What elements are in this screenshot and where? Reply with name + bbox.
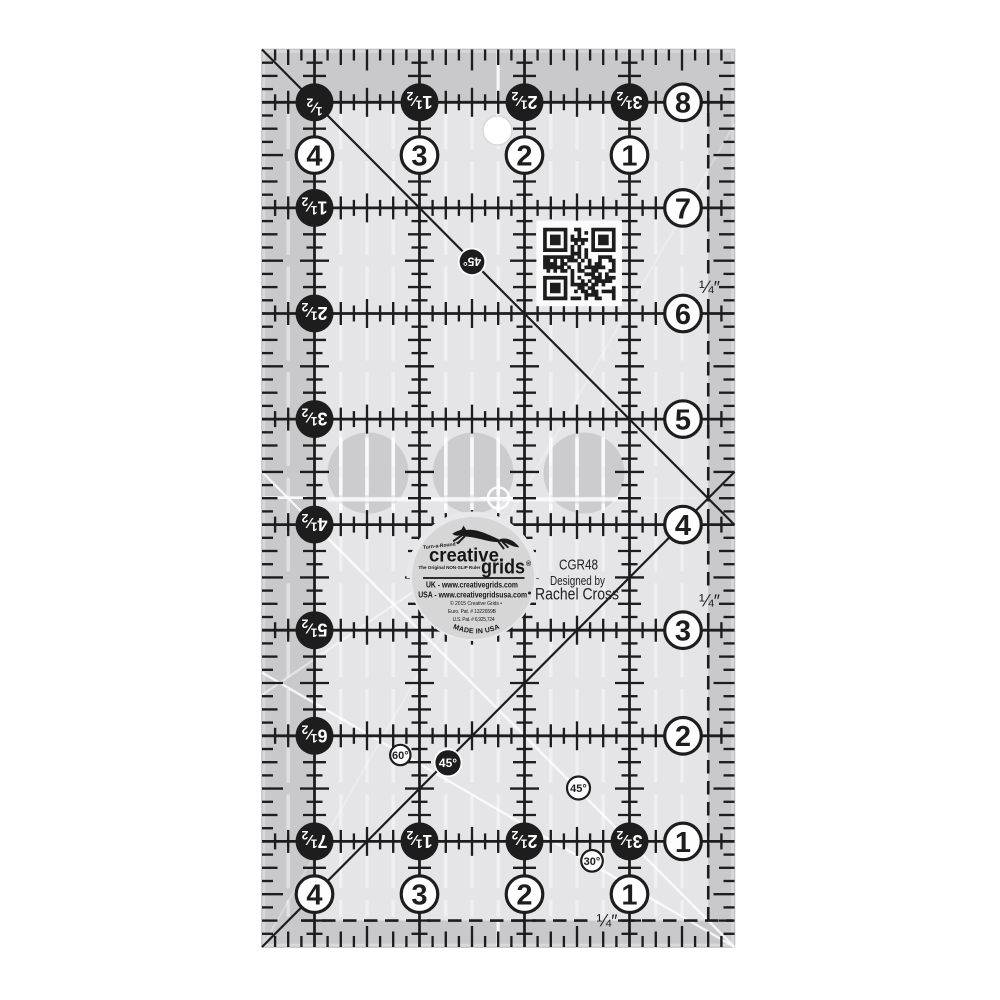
svg-text:4: 4 [675,510,691,542]
svg-text:3: 3 [411,880,427,912]
svg-text:U.S. Pat. # 6,925,724: U.S. Pat. # 6,925,724 [453,617,495,623]
svg-text:USA - www.creativegridsusa.com: USA - www.creativegridsusa.com [418,591,527,600]
svg-text:3: 3 [411,141,427,173]
svg-text:¼″: ¼″ [597,911,618,931]
svg-text:4: 4 [306,141,322,173]
svg-text:¼″: ¼″ [699,591,720,611]
svg-text:grids: grids [481,557,525,579]
svg-text:60°: 60° [392,750,409,762]
svg-text:2: 2 [675,721,691,753]
svg-text:2: 2 [516,141,532,173]
svg-text:30°: 30° [584,856,601,868]
svg-text:45°: 45° [570,783,587,795]
svg-text:© 2015 Creative Grids •: © 2015 Creative Grids • [450,600,502,607]
svg-text:Euro. Pat. # 1322659B: Euro. Pat. # 1322659B [448,609,497,615]
svg-text:45°: 45° [463,255,481,269]
svg-text:45°: 45° [439,756,457,770]
svg-text:8: 8 [675,88,691,120]
svg-text:5: 5 [675,405,691,437]
svg-text:The Original NON-SLIP Ruler: The Original NON-SLIP Ruler [419,565,481,570]
svg-text:1: 1 [621,880,637,912]
svg-text:Rachel Cross: Rachel Cross [535,586,619,604]
svg-text:4: 4 [306,880,322,912]
svg-text:6: 6 [675,299,691,331]
svg-text:2: 2 [516,880,532,912]
svg-text:3: 3 [675,616,691,648]
svg-text:UK - www.creativegrids.com: UK - www.creativegrids.com [426,581,518,590]
svg-text:®: ® [526,560,532,568]
svg-text:7: 7 [675,193,691,225]
svg-text:1: 1 [621,141,637,173]
svg-text:¼″: ¼″ [699,277,720,297]
svg-text:1: 1 [675,827,691,859]
svg-text:CGR48: CGR48 [559,557,598,574]
